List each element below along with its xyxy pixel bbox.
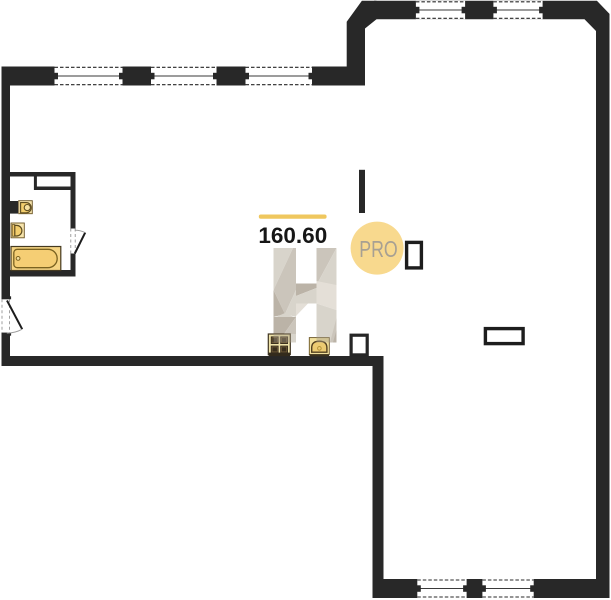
svg-text:PRO: PRO (359, 236, 398, 262)
svg-text:160.60: 160.60 (258, 223, 327, 248)
